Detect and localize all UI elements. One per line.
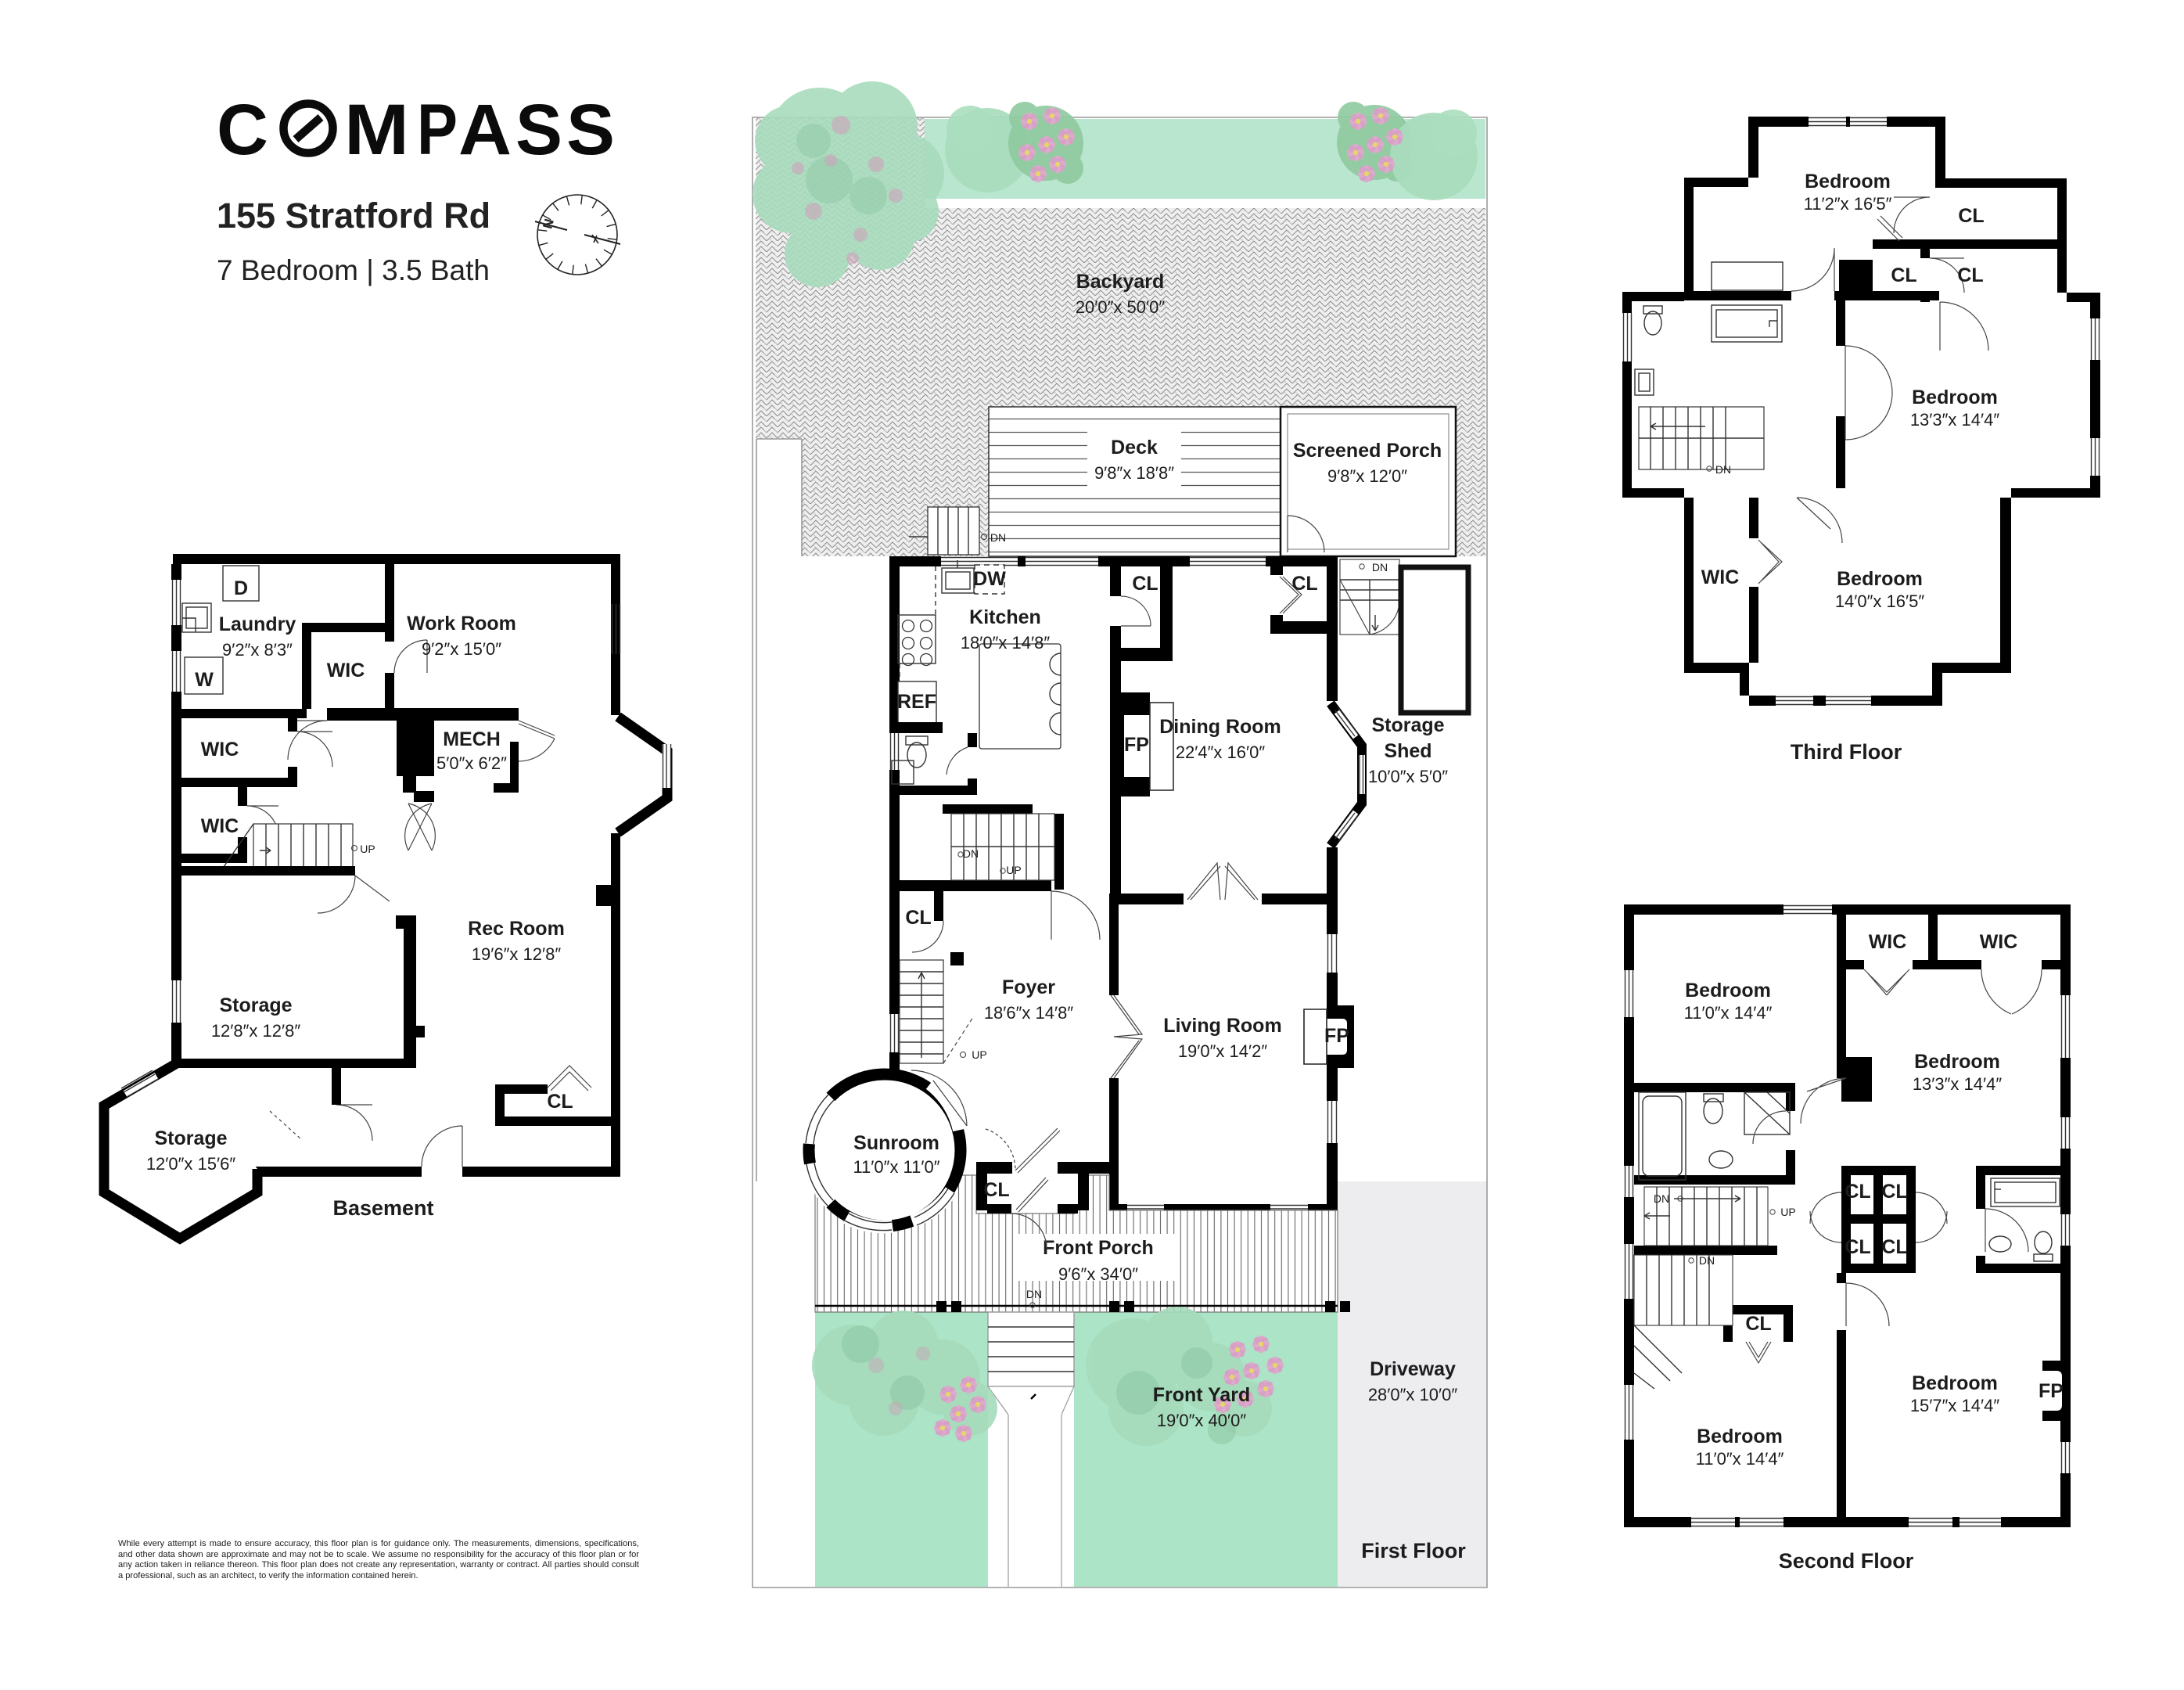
svg-text:13′3″x 14′4″: 13′3″x 14′4″ — [1910, 410, 2000, 430]
svg-text:19′0″x 14′2″: 19′0″x 14′2″ — [1178, 1041, 1268, 1061]
svg-text:W: W — [195, 669, 214, 691]
svg-text:First Floor: First Floor — [1361, 1539, 1466, 1562]
svg-text:19′0″x 40′0″: 19′0″x 40′0″ — [1157, 1411, 1247, 1430]
svg-text:Bedroom: Bedroom — [1912, 387, 1998, 408]
svg-text:WIC: WIC — [201, 815, 239, 837]
svg-text:Front Yard: Front Yard — [1153, 1384, 1251, 1406]
svg-text:Laundry: Laundry — [219, 613, 296, 635]
svg-text:11′2″x 16′5″: 11′2″x 16′5″ — [1804, 194, 1892, 214]
svg-text:Bedroom: Bedroom — [1912, 1372, 1998, 1394]
svg-text:P: P — [417, 90, 458, 170]
svg-text:DN: DN — [990, 531, 1006, 544]
svg-text:MECH: MECH — [443, 728, 501, 750]
svg-text:5′0″x 6′2″: 5′0″x 6′2″ — [436, 753, 507, 773]
svg-text:20′0″x 50′0″: 20′0″x 50′0″ — [1076, 297, 1166, 317]
svg-text:7 Bedroom | 3.5 Bath: 7 Bedroom | 3.5 Bath — [217, 254, 490, 286]
svg-text:Bedroom: Bedroom — [1697, 1426, 1783, 1447]
svg-text:9′6″x 34′0″: 9′6″x 34′0″ — [1058, 1264, 1138, 1284]
svg-text:28′0″x 10′0″: 28′0″x 10′0″ — [1368, 1385, 1458, 1404]
svg-text:CL: CL — [547, 1091, 573, 1113]
svg-text:14′0″x 16′5″: 14′0″x 16′5″ — [1835, 591, 1925, 611]
svg-text:Bedroom: Bedroom — [1837, 568, 1923, 590]
svg-text:Dining Room: Dining Room — [1159, 716, 1281, 738]
svg-text:CL: CL — [1957, 264, 1983, 286]
svg-text:15′7″x 14′4″: 15′7″x 14′4″ — [1910, 1396, 2000, 1415]
svg-text:WIC: WIC — [1869, 931, 1907, 953]
svg-text:REF: REF — [897, 691, 936, 713]
svg-text:12′8″x 12′8″: 12′8″x 12′8″ — [211, 1021, 301, 1041]
svg-text:155 Stratford Rd: 155 Stratford Rd — [217, 196, 490, 236]
svg-text:Living Room: Living Room — [1163, 1015, 1281, 1037]
svg-text:Second Floor: Second Floor — [1779, 1549, 1914, 1573]
svg-text:A: A — [458, 90, 512, 170]
svg-text:Rec Room: Rec Room — [468, 918, 565, 940]
svg-text:11′0″x 14′4″: 11′0″x 14′4″ — [1696, 1449, 1784, 1469]
svg-text:Work Room: Work Room — [407, 613, 516, 635]
svg-text:Storage: Storage — [154, 1127, 227, 1149]
svg-text:Storage: Storage — [1371, 714, 1444, 736]
svg-text:N: N — [540, 217, 557, 230]
svg-text:11′0″x 11′0″: 11′0″x 11′0″ — [853, 1157, 939, 1177]
svg-text:22′4″x 16′0″: 22′4″x 16′0″ — [1176, 743, 1266, 762]
svg-text:Bedroom: Bedroom — [1685, 980, 1771, 1001]
svg-text:Basement: Basement — [332, 1196, 433, 1220]
svg-text:10′0″x 5′0″: 10′0″x 5′0″ — [1368, 767, 1448, 786]
svg-text:Front Porch: Front Porch — [1043, 1237, 1154, 1259]
svg-text:DN: DN — [1372, 561, 1388, 574]
svg-text:DN: DN — [963, 847, 979, 860]
svg-text:M: M — [344, 90, 409, 170]
svg-text:S: S — [515, 90, 562, 170]
svg-text:DN: DN — [1654, 1192, 1669, 1205]
svg-text:S: S — [566, 90, 615, 170]
svg-text:Bedroom: Bedroom — [1805, 171, 1891, 192]
svg-text:UP: UP — [1006, 864, 1021, 876]
svg-text:19′6″x 12′8″: 19′6″x 12′8″ — [472, 944, 562, 964]
svg-text:UP: UP — [972, 1048, 986, 1061]
svg-text:9′8″x 18′8″: 9′8″x 18′8″ — [1094, 463, 1174, 483]
svg-text:DW: DW — [973, 568, 1006, 590]
svg-text:CL: CL — [1881, 1181, 1907, 1203]
svg-text:Screened Porch: Screened Porch — [1293, 440, 1442, 462]
svg-text:Driveway: Driveway — [1370, 1358, 1456, 1380]
svg-text:CL: CL — [1845, 1181, 1870, 1203]
svg-text:CL: CL — [983, 1179, 1009, 1201]
svg-text:9′2″x 8′3″: 9′2″x 8′3″ — [222, 640, 293, 660]
svg-text:FP: FP — [1124, 734, 1149, 756]
svg-text:Deck: Deck — [1111, 437, 1158, 458]
svg-text:CL: CL — [1132, 573, 1158, 595]
svg-text:UP: UP — [360, 843, 375, 855]
svg-text:9′8″x 12′0″: 9′8″x 12′0″ — [1327, 466, 1407, 486]
svg-text:CL: CL — [1845, 1236, 1870, 1258]
svg-text:11′0″x 14′4″: 11′0″x 14′4″ — [1684, 1003, 1773, 1023]
svg-text:DN: DN — [1715, 463, 1731, 476]
svg-text:18′0″x 14′8″: 18′0″x 14′8″ — [961, 633, 1051, 653]
svg-text:D: D — [234, 577, 248, 599]
svg-text:Shed: Shed — [1384, 740, 1431, 762]
svg-text:C: C — [217, 90, 268, 170]
svg-text:FP: FP — [1324, 1025, 1349, 1047]
svg-text:18′6″x 14′8″: 18′6″x 14′8″ — [984, 1003, 1074, 1023]
svg-text:CL: CL — [1745, 1313, 1771, 1335]
svg-text:CL: CL — [1291, 573, 1317, 595]
svg-text:9′2″x 15′0″: 9′2″x 15′0″ — [422, 639, 501, 659]
svg-text:FP: FP — [2039, 1380, 2064, 1402]
svg-text:DN: DN — [1026, 1288, 1042, 1300]
svg-text:12′0″x 15′6″: 12′0″x 15′6″ — [146, 1154, 236, 1174]
svg-text:WIC: WIC — [201, 739, 239, 760]
svg-text:Bedroom: Bedroom — [1914, 1051, 2000, 1073]
svg-text:DN: DN — [1699, 1254, 1715, 1267]
svg-text:WIC: WIC — [327, 660, 365, 681]
svg-text:CL: CL — [905, 907, 931, 929]
svg-text:CL: CL — [1958, 205, 1984, 227]
svg-text:Sunroom: Sunroom — [853, 1132, 939, 1154]
svg-text:Storage: Storage — [219, 994, 292, 1016]
svg-text:UP: UP — [1780, 1206, 1795, 1218]
svg-text:Kitchen: Kitchen — [969, 606, 1041, 628]
svg-text:CL: CL — [1881, 1236, 1907, 1258]
svg-text:WIC: WIC — [1701, 566, 1740, 588]
svg-text:WIC: WIC — [1980, 931, 2018, 953]
svg-text:CL: CL — [1891, 264, 1916, 286]
svg-text:Foyer: Foyer — [1002, 976, 1055, 998]
svg-text:Third Floor: Third Floor — [1791, 740, 1902, 764]
svg-text:Backyard: Backyard — [1076, 271, 1165, 293]
svg-text:13′3″x 14′4″: 13′3″x 14′4″ — [1913, 1074, 2003, 1094]
